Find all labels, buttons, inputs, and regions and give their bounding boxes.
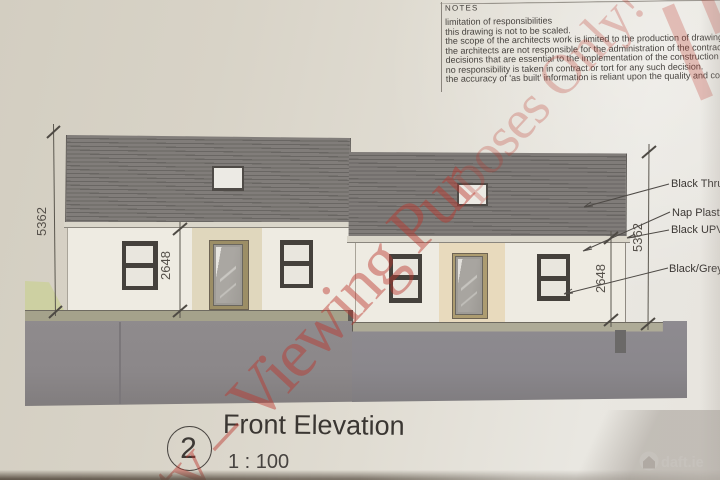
svg-text:ty – Viewing Pur: ty – Viewing Pur [137,147,491,480]
svg-text:poses Only!: poses Only! [435,0,656,207]
svg-text:2648: 2648 [158,251,173,280]
svg-text:5362: 5362 [34,207,49,236]
svg-text:2648: 2648 [593,264,608,293]
